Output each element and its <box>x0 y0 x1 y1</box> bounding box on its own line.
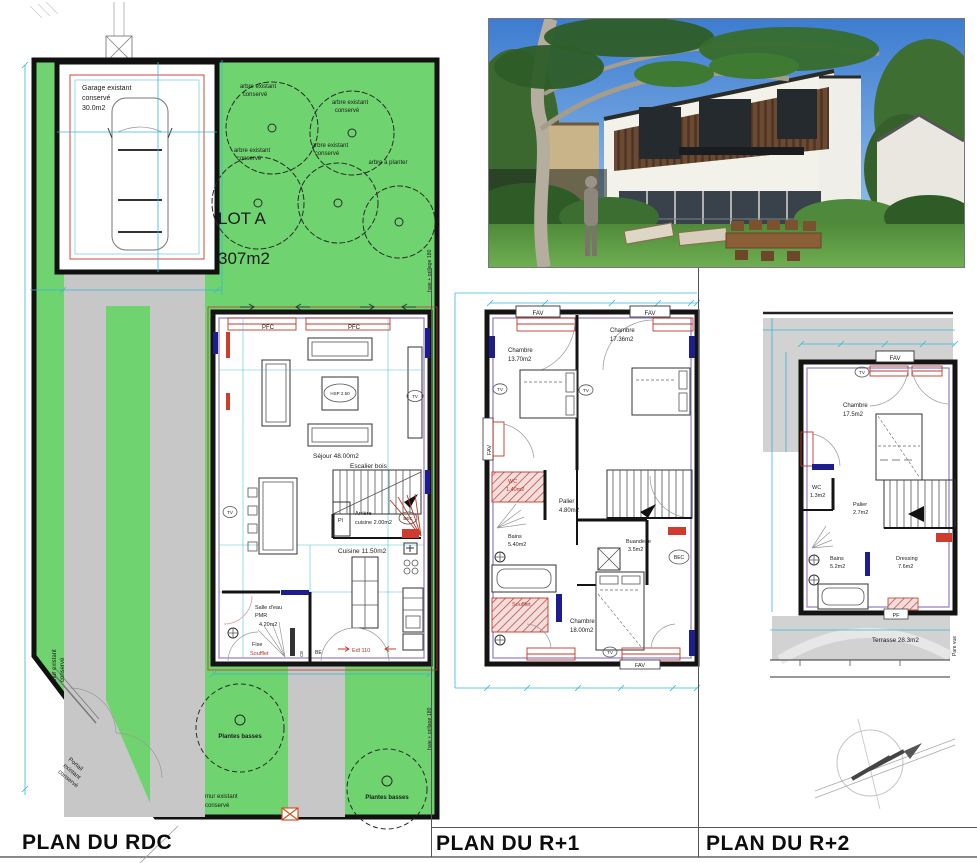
rdc-arriere-cuisine-label: cuisine 2.00m2 <box>355 520 392 526</box>
tree-new-label: arbre à planter <box>368 160 407 166</box>
rdc-soufflet-label: Soufflet <box>250 651 269 657</box>
r2-bains-label: 5.2m2 <box>830 564 845 570</box>
r1-palier-label: Palier <box>559 499 574 505</box>
svg-text:Plantes basses: Plantes basses <box>365 795 409 801</box>
r2-bed <box>876 414 922 480</box>
utility-pole-icon <box>30 2 132 62</box>
svg-text:WC: WC <box>508 479 517 485</box>
svg-text:conservé: conservé <box>237 156 262 162</box>
svg-text:conservé: conservé <box>60 657 66 682</box>
r2-floor-plan: FAV TV Chambre 17.5m2 WC 1.3m2 <box>763 313 958 677</box>
rdc-fixe-label: Fixe <box>252 642 262 648</box>
svg-text:arbre existant: arbre existant <box>240 84 277 90</box>
r1-floor-plan: FAV FAV Chambre 13.70m2 Chambre 17.36m2 <box>455 293 700 691</box>
svg-text:arbre existant: arbre existant <box>234 148 271 154</box>
svg-text:mur existant: mur existant <box>52 649 58 682</box>
rdc-be-label: BE <box>315 650 322 656</box>
svg-text:arbre existant: arbre existant <box>312 143 349 149</box>
render-photo-drawing <box>489 19 964 267</box>
r2-tv-label: TV <box>859 370 865 375</box>
r1-tv-label: TV <box>607 650 613 655</box>
rdc-tv-label: TV <box>412 394 418 399</box>
svg-text:WC: WC <box>812 485 821 491</box>
r2-dressing-label: 7.6m2 <box>898 564 913 570</box>
rdc-escalier-label: Escalier bois <box>350 463 388 470</box>
r1-chambre3-label: Chambre <box>570 619 595 625</box>
r2-pare-vue-label: Pare vue <box>952 636 958 656</box>
r1-chambre2-label: Chambre <box>610 328 635 334</box>
rdc-edl-label: Edl 110 <box>352 648 370 654</box>
svg-text:Soufflet: Soufflet <box>512 602 531 608</box>
r2-dressing-label: Dressing <box>896 556 918 562</box>
rdc-title: PLAN DU RDC <box>22 831 172 855</box>
r2-bains-label: Bains <box>830 556 844 562</box>
garage: Garage existant conservé 30.0m2 <box>57 62 217 272</box>
svg-text:Plantes basses: Plantes basses <box>218 734 262 740</box>
north-arrow-icon <box>815 719 955 809</box>
r2-palier-label: Palier <box>853 502 867 508</box>
r1-chambre1-label: 13.70m2 <box>508 357 532 363</box>
rdc-salle-eau-label: Salle d'eau <box>255 605 282 611</box>
r1-tv-label: TV <box>497 387 503 392</box>
r2-palier-label: 2.7m2 <box>853 510 868 516</box>
r1-bains-label: 5.40m2 <box>508 542 526 548</box>
svg-text:haie + grillage 180: haie + grillage 180 <box>427 249 433 292</box>
svg-text:FAV: FAV <box>533 311 544 317</box>
svg-text:1.40m2: 1.40m2 <box>506 487 524 493</box>
garage-label: conservé <box>82 95 111 102</box>
rdc-tv-label: TV <box>227 510 233 515</box>
r1-chambre3-label: 18.00m2 <box>570 628 594 634</box>
garage-label: Garage existant <box>82 85 131 92</box>
rdc-hsp-label: HSP 2.50 <box>330 391 350 396</box>
r1-title: PLAN DU R+1 <box>436 832 580 856</box>
rdc-pfc-label: PFC <box>348 325 361 331</box>
car-icon <box>108 98 172 250</box>
svg-text:FAV: FAV <box>645 311 656 317</box>
rdc-pfc-label: PFC <box>262 325 275 331</box>
rdc-sejour-label: Séjour 48.00m2 <box>313 453 359 460</box>
svg-text:haie + grillage 180: haie + grillage 180 <box>427 707 433 750</box>
svg-text:conservé: conservé <box>243 92 268 98</box>
svg-text:1.3m2: 1.3m2 <box>810 493 825 499</box>
rdc-bec-label: BEC <box>403 516 413 521</box>
r2-terrasse-label: Terrasse 28.3m2 <box>872 637 919 644</box>
svg-text:conservé: conservé <box>335 108 360 114</box>
r1-chambre2-label: 17.36m2 <box>610 337 634 343</box>
r1-fav-left-label: FAV <box>487 445 493 455</box>
svg-text:mur existant: mur existant <box>205 794 238 800</box>
r1-buanderie-label: Buanderie <box>626 539 651 545</box>
r2-chambre-label: Chambre <box>843 403 868 409</box>
rdc-floor-plan: PFC PFC HSP 2.50 TV <box>208 304 437 670</box>
lot-label: LOT A <box>218 209 267 228</box>
r1-bains-label: Bains <box>508 534 522 540</box>
svg-text:conservé: conservé <box>205 803 230 809</box>
lot-area: 307m2 <box>218 249 270 268</box>
rdc-arriere-cuisine-label: Arrière <box>355 511 372 517</box>
architectural-plan-sheet: Garage existant conservé 30.0m2 <box>0 0 977 863</box>
r1-bec-label: BEC <box>674 555 685 561</box>
r1-bed3 <box>596 572 644 650</box>
r1-buanderie-label: 3.5m2 <box>628 547 643 553</box>
rdc-salle-eau-label: PMR <box>255 613 267 619</box>
r2-chambre-label: 17.5m2 <box>843 412 864 418</box>
garage-label: 30.0m2 <box>82 105 105 112</box>
rdc-ce-label: CE <box>299 651 304 657</box>
render-photo <box>488 18 965 268</box>
rdc-cuisine-label: Cuisine 11.50m2 <box>338 548 387 555</box>
r2-fav-label: FAV <box>890 356 901 362</box>
utility-marker-icon <box>282 808 298 820</box>
rdc-placard-label: Pl <box>338 518 343 524</box>
r2-title: PLAN DU R+2 <box>706 832 850 856</box>
r1-palier-label: 4.80m2 <box>559 508 580 514</box>
svg-text:conservé: conservé <box>315 151 340 157</box>
svg-text:FAV: FAV <box>635 663 645 669</box>
r1-chambre1-label: Chambre <box>508 348 533 354</box>
rdc-salle-eau-label: 4.20m2 <box>259 622 277 628</box>
svg-text:arbre existant: arbre existant <box>332 100 369 106</box>
r1-tv-label: TV <box>583 388 589 393</box>
r2-pf-label: PF <box>892 613 900 619</box>
